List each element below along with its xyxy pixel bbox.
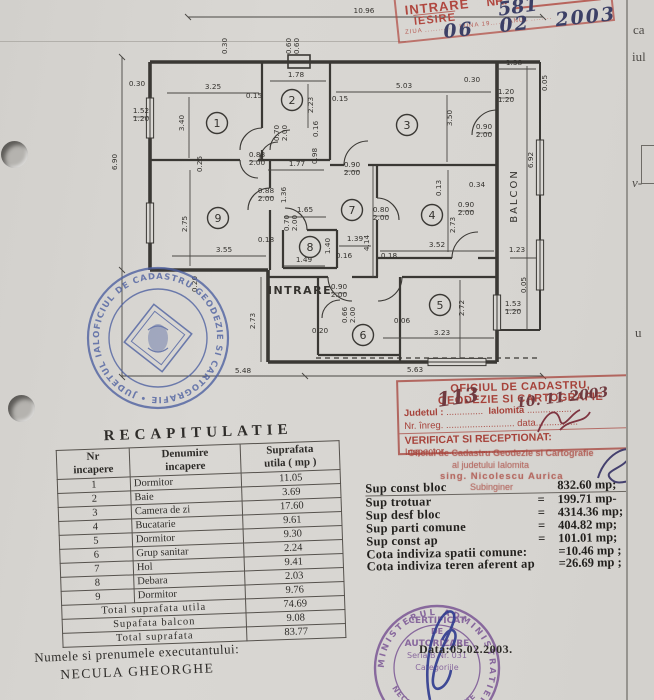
edge-text-fragment: u — [635, 325, 642, 341]
underlying-page — [628, 0, 654, 700]
verificat-signature — [538, 410, 590, 432]
edge-text-fragment: v- — [632, 175, 642, 191]
page-edge — [626, 0, 628, 700]
edge-text-fragment: ca — [633, 22, 645, 38]
blue-round-stamp: OFICIUL DE CADASTRU GEODEZIE SI CARTOGRA… — [0, 0, 228, 408]
punch-hole — [1, 141, 28, 168]
stamps-overlay: OFICIUL DE CADASTRU GEODEZIE SI CARTOGRA… — [0, 0, 654, 700]
punch-hole — [8, 395, 35, 422]
underlying-page-box — [641, 145, 654, 184]
svg-text:OFICIUL DE CADASTRU GEODEZIE S: OFICIUL DE CADASTRU GEODEZIE SI CARTOGRA… — [0, 0, 224, 404]
scanned-cadastral-document: 10.966.905.485.632.736.920.300.300.600.6… — [0, 0, 654, 700]
blue-stamp-ring-text: OFICIUL DE CADASTRU GEODEZIE SI CARTOGRA… — [0, 0, 224, 404]
edge-text-fragment: iul — [632, 49, 646, 65]
certification-date: Data:05.02.2003. — [419, 642, 513, 657]
